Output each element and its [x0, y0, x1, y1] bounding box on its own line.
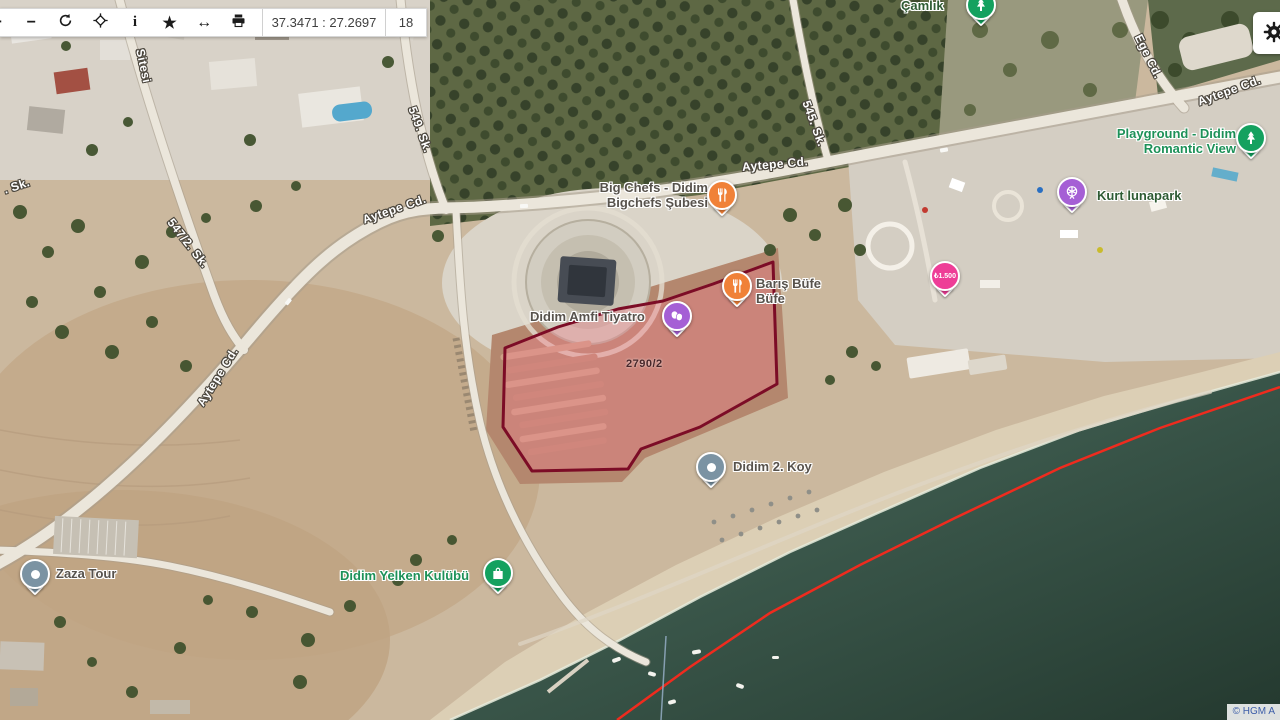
poi-label-playground[interactable]: Playground - Didim Romantic View: [1094, 126, 1236, 156]
poi-label-line: Barış Büfe: [756, 276, 821, 291]
tree-icon: [966, 0, 996, 20]
poi-label-didim-amfi-tiyatro[interactable]: Didim Amfi Tiyatro: [530, 309, 645, 324]
poi-label-baris-bufe[interactable]: Barış Büfe Büfe: [756, 276, 821, 306]
print-button[interactable]: [226, 10, 252, 35]
poi-label-didim-yelken-kulubu[interactable]: Didim Yelken Kulübü: [340, 568, 469, 583]
fork-knife-icon: [722, 271, 752, 301]
poi-label-camlik[interactable]: Çamlık: [901, 0, 944, 13]
fork-knife-icon: [707, 180, 737, 210]
price-tag: ₺1.500: [930, 261, 960, 291]
map-application: Sitesi . Sk. 547/2. Sk. 549. Sk. Aytepe …: [0, 0, 1280, 720]
poi-label-big-chefs[interactable]: Big Chefs - Didim Bigchefs Şubesi: [576, 180, 708, 210]
poi-marker-zaza-tour[interactable]: [20, 559, 50, 597]
refresh-button[interactable]: [53, 10, 79, 35]
poi-marker-playground[interactable]: [1236, 123, 1266, 161]
zoom-out-button[interactable]: −: [18, 10, 44, 35]
poi-label-line: Bigchefs Şubesi: [576, 195, 708, 210]
poi-label-line: Romantic View: [1094, 141, 1236, 156]
attribution-watermark: © HGM A: [1227, 704, 1280, 720]
poi-label-line: Playground - Didim: [1117, 126, 1236, 141]
ferris-wheel-icon: [1057, 177, 1087, 207]
poi-marker-big-chefs[interactable]: [707, 180, 737, 218]
poi-marker-kurt-lunapark[interactable]: [1057, 177, 1087, 215]
poi-label-zaza-tour[interactable]: Zaza Tour: [56, 566, 116, 581]
dot-icon: [696, 452, 726, 482]
poi-label-line: Büfe: [756, 291, 821, 306]
parcel-number-label: 2790/2: [626, 358, 663, 370]
crosshair-icon: [93, 13, 108, 33]
parking-lot: [53, 516, 139, 558]
poi-marker-baris-bufe[interactable]: [722, 271, 752, 309]
map-toolbar: + − i ★ ↔ 37: [0, 8, 427, 37]
poi-label-kurt-lunapark[interactable]: Kurt lunapark: [1097, 188, 1182, 203]
printer-icon: [231, 13, 246, 33]
bag-icon: [483, 558, 513, 588]
theater-masks-icon: [662, 301, 692, 331]
locate-button[interactable]: [87, 10, 113, 35]
poi-marker-price[interactable]: ₺1.500: [930, 261, 960, 299]
zoom-level-display: 18: [385, 9, 426, 36]
refresh-icon: [58, 13, 73, 33]
poi-label-line: Big Chefs - Didim: [600, 180, 708, 195]
info-button[interactable]: i: [122, 10, 148, 35]
toolbar-icons: + − i ★ ↔: [0, 9, 262, 36]
poi-marker-didim-yelken-kulubu[interactable]: [483, 558, 513, 596]
settings-button[interactable]: [1253, 12, 1280, 54]
tree-icon: [1236, 123, 1266, 153]
poi-marker-didim-2-koy[interactable]: [696, 452, 726, 490]
measure-button[interactable]: ↔: [191, 10, 217, 35]
poi-marker-didim-amfi-tiyatro[interactable]: [662, 301, 692, 339]
poi-marker-camlik[interactable]: [966, 0, 996, 28]
gear-icon: [1261, 19, 1280, 48]
favorite-button[interactable]: ★: [157, 10, 183, 35]
zoom-in-button[interactable]: +: [0, 9, 6, 34]
coordinates-display: 37.3471 : 27.2697: [262, 9, 385, 36]
dot-icon: [20, 559, 50, 589]
poi-label-didim-2-koy[interactable]: Didim 2. Koy: [733, 459, 812, 474]
